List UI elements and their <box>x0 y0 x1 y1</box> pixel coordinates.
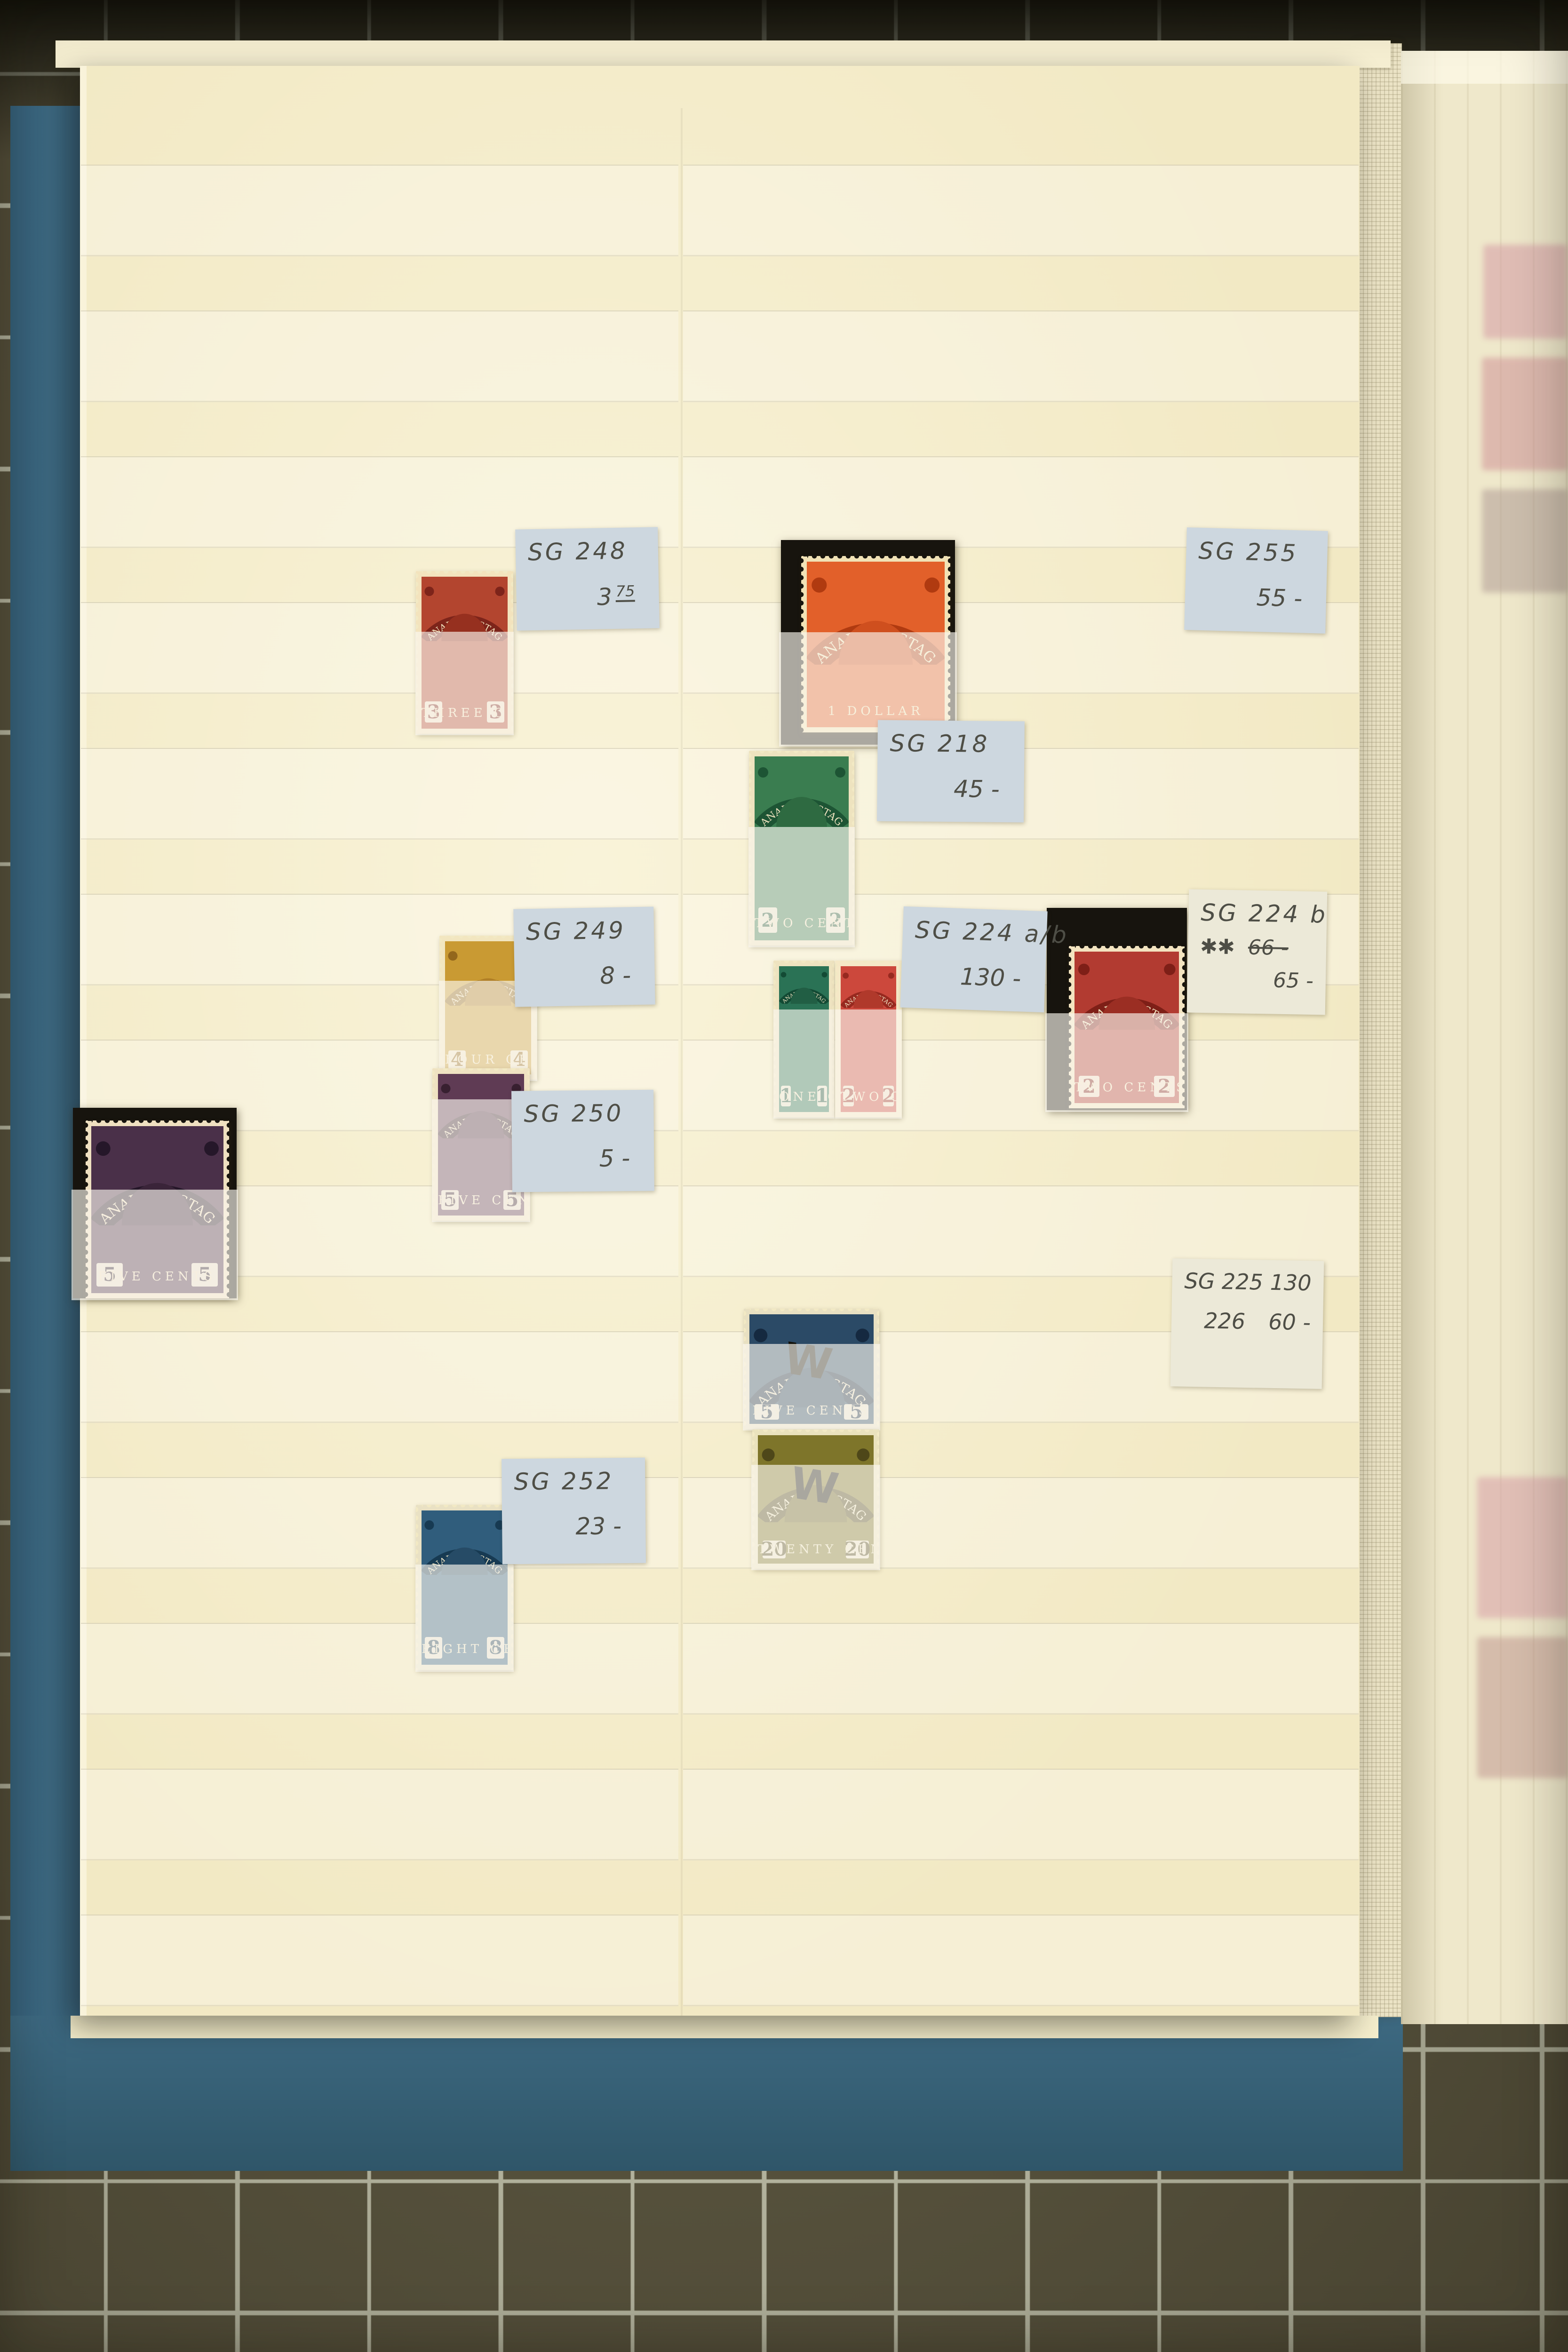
stamp-2c-green: CANADA POSTAGE 2 2 TWO CENTS <box>749 751 854 946</box>
glassine-overlay <box>72 1190 239 1300</box>
label-price: 23 - <box>514 1512 633 1541</box>
label-price: 8 - <box>526 961 643 991</box>
page-binding-edge <box>1359 43 1402 2017</box>
glassine-strip <box>81 1331 678 1423</box>
glassine-overlay <box>773 1009 835 1119</box>
glassine-strip <box>683 1623 1359 1715</box>
label-price: 55 - <box>1197 582 1314 612</box>
page-stack-bottom-edge <box>71 2016 1378 2038</box>
ghost-stamp <box>1482 489 1568 593</box>
glassine-strip <box>683 165 1359 256</box>
interleaf-top-edge <box>1401 51 1568 84</box>
stamp-1c-green-coil: CANADA POSTAGE 1 1 ONE CENT <box>774 961 834 1117</box>
label-code: SG 218 <box>890 730 1012 758</box>
label-line2: 22660 - <box>1184 1308 1311 1335</box>
label-sg225-226: SG 225130 22660 - <box>1170 1258 1324 1389</box>
glassine-strip <box>683 310 1359 402</box>
label-code: SG 252 <box>514 1467 633 1495</box>
ghost-stamp <box>1477 1477 1568 1618</box>
glassine-overlay <box>415 632 514 736</box>
label-old-price: ✱✱ 66 - <box>1200 935 1314 961</box>
glassine-strip <box>81 165 678 256</box>
glassine-strip <box>683 1915 1359 2006</box>
label-code: SG 255 <box>1198 537 1315 567</box>
label-sg255: SG 255 55 - <box>1184 527 1328 634</box>
label-sg224b: SG 224 b ✱✱ 66 - 65 - <box>1187 889 1328 1015</box>
glassine-strip <box>81 748 678 840</box>
stamp-1-dollar-orange: CANADA POSTAGE 1 DOLLAR <box>781 540 955 745</box>
page-stack-top-edge <box>56 40 1391 68</box>
glassine-strip <box>81 1769 678 1860</box>
label-code: SG 250 <box>524 1099 641 1128</box>
glassine-overlay <box>415 1565 514 1672</box>
glassine-strip <box>683 1769 1359 1860</box>
label-code: SG 224 b <box>1201 899 1315 928</box>
label-sg250: SG 250 5 - <box>511 1090 654 1192</box>
label-sg248: SG 248 375 <box>515 527 660 630</box>
label-sg249: SG 249 8 - <box>513 906 655 1007</box>
label-sg218: SG 218 45 - <box>877 720 1025 823</box>
ghost-stamp <box>1483 245 1567 339</box>
label-line1: SG 225130 <box>1184 1268 1312 1296</box>
glassine-strip <box>81 1623 678 1715</box>
label-code: SG 224 a/b <box>915 916 1035 948</box>
stamp-arc-graphic: CANADA POSTAGE <box>841 966 896 1008</box>
glassine-strip <box>81 310 678 402</box>
stamp-arc-graphic: CANADA POSTAGE <box>779 966 829 1004</box>
label-code: SG 249 <box>526 916 642 946</box>
glassine-overlay <box>835 1009 902 1119</box>
glassine-overlay <box>748 827 855 947</box>
glassine-interleaf-page <box>1401 51 1568 2024</box>
album-cover-bottom-edge <box>10 2016 1403 2171</box>
glassine-strip <box>81 1915 678 2006</box>
album-cover-left-edge <box>10 106 81 2171</box>
stamp-20c-olive-w-mark: CANADA POSTAGE 20 20 TWENTY CENTS W <box>753 1430 879 1569</box>
glassine-overlay <box>743 1344 880 1430</box>
label-price: 375 <box>528 582 647 612</box>
ghost-stamp <box>1477 1637 1568 1778</box>
label-price: 45 - <box>889 775 1011 803</box>
stamp-5c-blue-w-mark: CANADA POSTAGE 5 5 FIVE CENTS W <box>744 1309 879 1429</box>
stamp-5c-violet-on-card: CANADA POSTAGE 5 5 FIVE CENTS <box>73 1108 237 1298</box>
label-sg252: SG 252 23 - <box>501 1458 646 1565</box>
stamp-3c-carmine: CANADA POSTAGE 3 3 THREE CENTS <box>416 572 513 734</box>
label-price: 5 - <box>524 1144 642 1173</box>
glassine-overlay <box>751 1465 880 1570</box>
label-code: SG 248 <box>527 537 646 566</box>
label-price: 65 - <box>1200 967 1314 993</box>
label-sg224ab: SG 224 a/b 130 - <box>900 906 1047 1013</box>
stamp-album-photo: CANADA POSTAGE 3 3 THREE CENTS <box>0 0 1568 2352</box>
label-price: 130 - <box>913 961 1034 993</box>
stamp-2c-red-coil: CANADA POSTAGE 2 2 TWO CENTS <box>836 961 901 1117</box>
stamp-arc-graphic: CANADA POSTAGE <box>755 756 849 827</box>
stamp-8c-blue: CANADA POSTAGE 8 8 EIGHT CENTS <box>416 1505 513 1670</box>
glassine-overlay <box>1045 1013 1188 1112</box>
ghost-stamp <box>1482 358 1568 470</box>
